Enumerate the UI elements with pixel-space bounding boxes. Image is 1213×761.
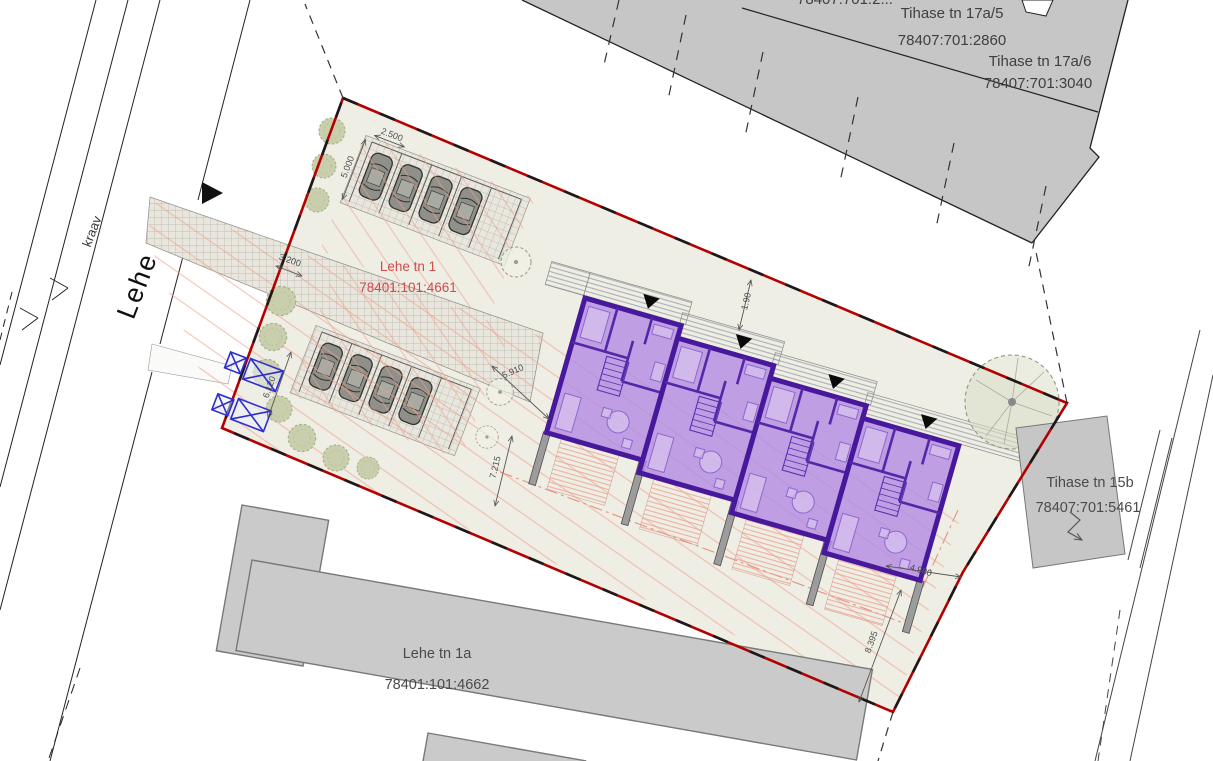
tree-icon — [501, 247, 531, 277]
entrance-arrow-icon — [202, 182, 223, 204]
tree-icon — [259, 323, 286, 350]
neighbor-parcel-15b — [1016, 416, 1125, 568]
ditch-label: kraav — [79, 213, 105, 249]
site-plan-canvas: Lehe tn kraav 2.500 5.000 — [0, 0, 1213, 761]
parcel-label-cadastre: 78407:701:5461 — [1036, 500, 1141, 516]
parcel-area-north — [522, 0, 1128, 243]
site-label-cadastre: 78401:101:4661 — [359, 280, 457, 295]
tree-icon — [288, 424, 315, 451]
tree-icon — [357, 457, 379, 479]
parcel-label-name: Tihase tn 17a/5 — [901, 5, 1004, 22]
tree-icon — [323, 445, 349, 471]
tree-icon — [476, 426, 498, 448]
tree-icon — [266, 286, 295, 315]
site-plan-drawing: Lehe tn kraav 2.500 5.000 — [0, 0, 1213, 761]
parcel-label-clipped: 78407:701:2... — [797, 0, 893, 8]
parcel-label-name: Tihase tn 17a/6 — [989, 53, 1092, 70]
parcel-label-cadastre: 78407:701:2860 — [898, 32, 1006, 49]
parcel-label-cadastre: 78401:101:4662 — [385, 677, 490, 693]
building-15b — [1016, 416, 1125, 568]
parcel-label-name: Tihase tn 15b — [1046, 475, 1133, 491]
parcel-label-cadastre: 78407:701:3040 — [984, 75, 1092, 92]
parcel-label-name: Lehe tn 1a — [403, 646, 472, 662]
ditch-branch-icon — [20, 278, 68, 330]
site-label-name: Lehe tn 1 — [380, 259, 436, 274]
